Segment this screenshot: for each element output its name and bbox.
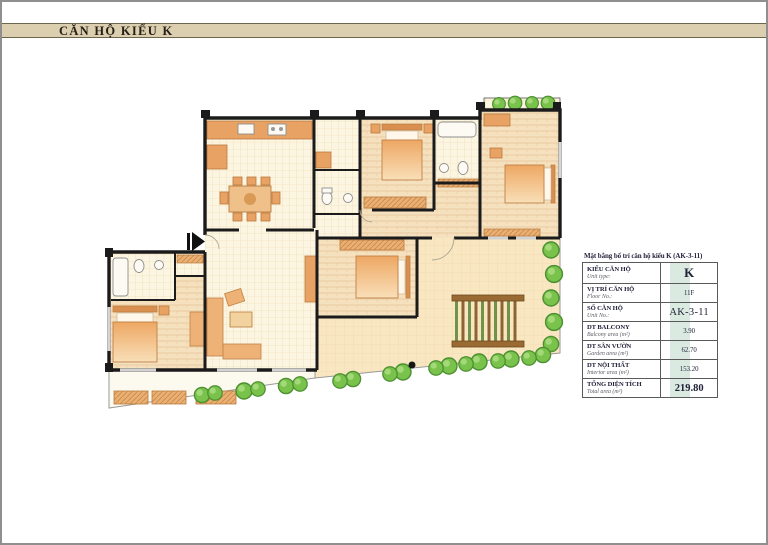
bush-icon: [522, 351, 536, 365]
bed-icon: [113, 306, 157, 362]
stove-icon: [268, 124, 286, 135]
info-panel: Mặt bằng bố trí căn hộ kiểu K (AK-3-11) …: [582, 252, 718, 398]
washer-icon: [316, 152, 331, 168]
info-caption: Mặt bằng bố trí căn hộ kiểu K (AK-3-11): [584, 252, 718, 260]
table-row: TỔNG DIỆN TÍCH Total area (m²) 219.80: [583, 379, 718, 398]
hall-floor: [314, 118, 360, 238]
bush-icon: [526, 97, 539, 110]
row-value: 11F: [661, 284, 718, 303]
bush-icon: [194, 387, 209, 402]
table-row: SỐ CĂN HỘ Unit No.: AK-3-11: [583, 303, 718, 322]
row-value: 62.70: [661, 341, 718, 360]
row-sublabel: Garden area (m²): [587, 351, 658, 357]
kitchen-counter: [207, 121, 312, 139]
bush-icon: [293, 377, 307, 391]
row-sublabel: Unit type:: [587, 274, 658, 280]
row-label: VỊ TRÍ CĂN HỘ: [587, 286, 658, 293]
sink-icon: [238, 124, 254, 134]
row-value: 153.20: [661, 360, 718, 379]
row-label: SỐ CĂN HỘ: [587, 305, 658, 312]
toilet-icon: [134, 260, 144, 273]
bush-icon: [345, 371, 360, 386]
row-sublabel: Interior area (m²): [587, 370, 658, 376]
fridge-icon: [207, 145, 227, 169]
wardrobe-icon: [340, 240, 404, 250]
table-row: KIỂU CĂN HỘ Unit type: K: [583, 263, 718, 284]
wardrobe-icon: [364, 197, 426, 208]
bush-icon: [333, 374, 347, 388]
toilet-icon: [458, 162, 468, 175]
bathtub-icon: [438, 122, 476, 137]
table-row: DT NỘI THẤT Interior area (m²) 153.20: [583, 360, 718, 379]
bush-icon: [546, 266, 563, 283]
sofa-icon: [207, 298, 223, 356]
row-sublabel: Balcony area (m²): [587, 332, 658, 338]
row-label: DT SÂN VƯỜN: [587, 343, 658, 350]
brochure-page: CĂN HỘ KIỂU K: [0, 0, 768, 545]
bush-icon: [508, 96, 522, 110]
sink-icon: [155, 261, 164, 270]
bush-icon: [429, 361, 443, 375]
table-row: DT BALCONY Balcony area (m²) 3.90: [583, 322, 718, 341]
bush-icon: [535, 347, 550, 362]
bush-icon: [383, 367, 397, 381]
tv-cabinet-icon: [305, 256, 316, 302]
row-label: DT NỘI THẤT: [587, 362, 658, 369]
info-table-body: KIỂU CĂN HỘ Unit type: K VỊ TRÍ CĂN HỘ F…: [583, 263, 718, 398]
bed-icon: [356, 256, 410, 298]
bush-icon: [543, 242, 559, 258]
shelf-icon: [177, 255, 203, 263]
bush-icon: [278, 378, 293, 393]
bed-icon: [505, 165, 555, 203]
dresser-icon: [484, 229, 540, 236]
bathtub-icon: [113, 258, 128, 296]
bush-icon: [459, 357, 473, 371]
row-value: K: [661, 263, 718, 284]
row-label: DT BALCONY: [587, 324, 658, 331]
row-value: 3.90: [661, 322, 718, 341]
coffee-table-icon: [230, 312, 252, 327]
bed-icon: [382, 124, 422, 180]
bush-icon: [491, 354, 505, 368]
sink-icon: [344, 194, 353, 203]
armchair-icon: [190, 312, 204, 346]
sink-icon: [440, 164, 449, 173]
row-label: KIỂU CĂN HỘ: [587, 266, 658, 273]
bush-icon: [208, 386, 222, 400]
bush-icon: [546, 314, 563, 331]
planter-icon: [114, 391, 148, 404]
tree-trunk-icon: [409, 362, 416, 369]
row-value: 219.80: [661, 379, 718, 398]
info-table: KIỂU CĂN HỘ Unit type: K VỊ TRÍ CĂN HỘ F…: [582, 262, 718, 398]
planter-icon: [152, 391, 186, 404]
row-value: AK-3-11: [661, 303, 718, 322]
row-sublabel: Floor No.:: [587, 294, 658, 300]
bush-icon: [543, 290, 559, 306]
row-sublabel: Total area (m²): [587, 389, 658, 395]
bush-icon: [251, 382, 265, 396]
row-label: TỔNG DIỆN TÍCH: [587, 381, 658, 388]
table-row: VỊ TRÍ CĂN HỘ Floor No.: 11F: [583, 284, 718, 303]
table-row: DT SÂN VƯỜN Garden area (m²) 62.70: [583, 341, 718, 360]
entry-arrow-icon: [187, 232, 205, 251]
bush-icon: [541, 96, 555, 110]
bush-icon: [236, 383, 252, 399]
sofa-icon: [223, 344, 261, 359]
row-sublabel: Unit No.:: [587, 313, 658, 319]
corridor-floor: [434, 183, 480, 238]
